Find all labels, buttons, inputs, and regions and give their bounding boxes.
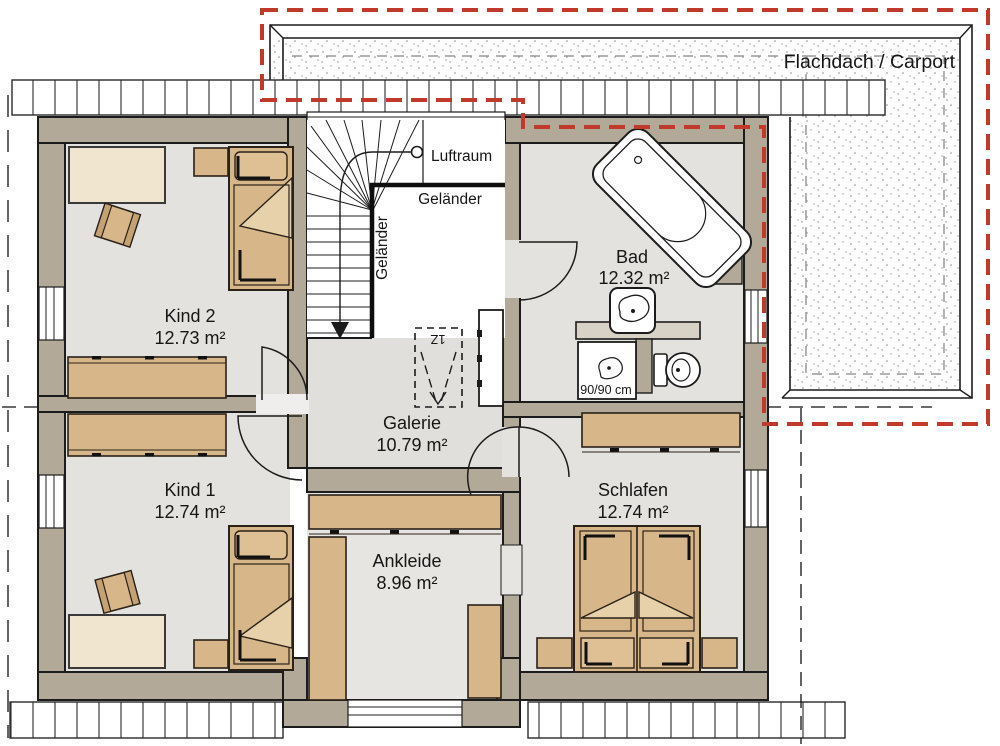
kind1-bed — [229, 526, 293, 670]
nightstand-right — [702, 638, 737, 668]
toilet — [654, 353, 700, 387]
stairwell-window — [307, 112, 505, 121]
kind-doors-opening — [256, 394, 309, 414]
kind1-window — [39, 475, 64, 528]
kind1-cabinet — [194, 640, 228, 668]
kind2-bed — [229, 147, 293, 290]
ankleide-door-opening — [501, 545, 522, 595]
ankleide-wardrobe-left — [309, 537, 346, 700]
shower-size-label: 90/90 cm — [580, 383, 631, 397]
svg-text:Galerie: Galerie — [383, 413, 441, 433]
svg-text:12.32 m²: 12.32 m² — [598, 268, 669, 288]
svg-text:Kind 2: Kind 2 — [164, 306, 215, 326]
gallery-radiator — [477, 310, 503, 406]
gelaender-side-label: Geländer — [374, 216, 391, 280]
floor-plan-page: 1Z Flachdach / Carport Luftraum Geländer… — [0, 0, 1000, 746]
gelaender-top-label: Geländer — [418, 191, 482, 208]
svg-text:12.73 m²: 12.73 m² — [154, 328, 225, 348]
carport-label: Flachdach / Carport — [784, 51, 956, 73]
wall-ankleide-top — [307, 468, 520, 492]
luftraum-marker — [412, 147, 423, 158]
kind2-desk — [69, 147, 165, 203]
svg-text:12.74 m²: 12.74 m² — [597, 502, 668, 522]
schlafen-wardrobe — [582, 413, 740, 447]
kind2-window — [39, 287, 64, 340]
nightstand-left — [537, 638, 572, 668]
svg-text:8.96 m²: 8.96 m² — [376, 573, 437, 593]
wall-bottom-right — [520, 672, 768, 700]
svg-text:Ankleide: Ankleide — [372, 551, 441, 571]
svg-text:Bad: Bad — [616, 247, 648, 267]
floor-plan-drawing: 1Z Flachdach / Carport Luftraum Geländer… — [0, 0, 1000, 746]
svg-text:Schlafen: Schlafen — [598, 480, 668, 500]
kind2-cabinet — [194, 148, 228, 176]
schlafen-double-bed — [574, 526, 700, 672]
schlafen-door-opening — [502, 427, 521, 477]
chimney-flue-label: 1Z — [430, 332, 445, 347]
svg-text:Kind 1: Kind 1 — [164, 480, 215, 500]
ankleide-wardrobe-top — [309, 495, 501, 529]
kind1-desk — [69, 615, 165, 668]
svg-text:12.74 m²: 12.74 m² — [154, 502, 225, 522]
shower-divider-wall — [636, 339, 652, 393]
wall-top-left — [38, 117, 307, 143]
ankleide-window — [348, 700, 462, 727]
ankleide-wardrobe-right — [468, 605, 501, 698]
luftraum-label: Luftraum — [431, 148, 492, 165]
svg-text:10.79 m²: 10.79 m² — [376, 435, 447, 455]
wall-bottom-left — [38, 672, 283, 700]
schlafen-window — [745, 470, 767, 527]
washbasin — [610, 288, 655, 333]
